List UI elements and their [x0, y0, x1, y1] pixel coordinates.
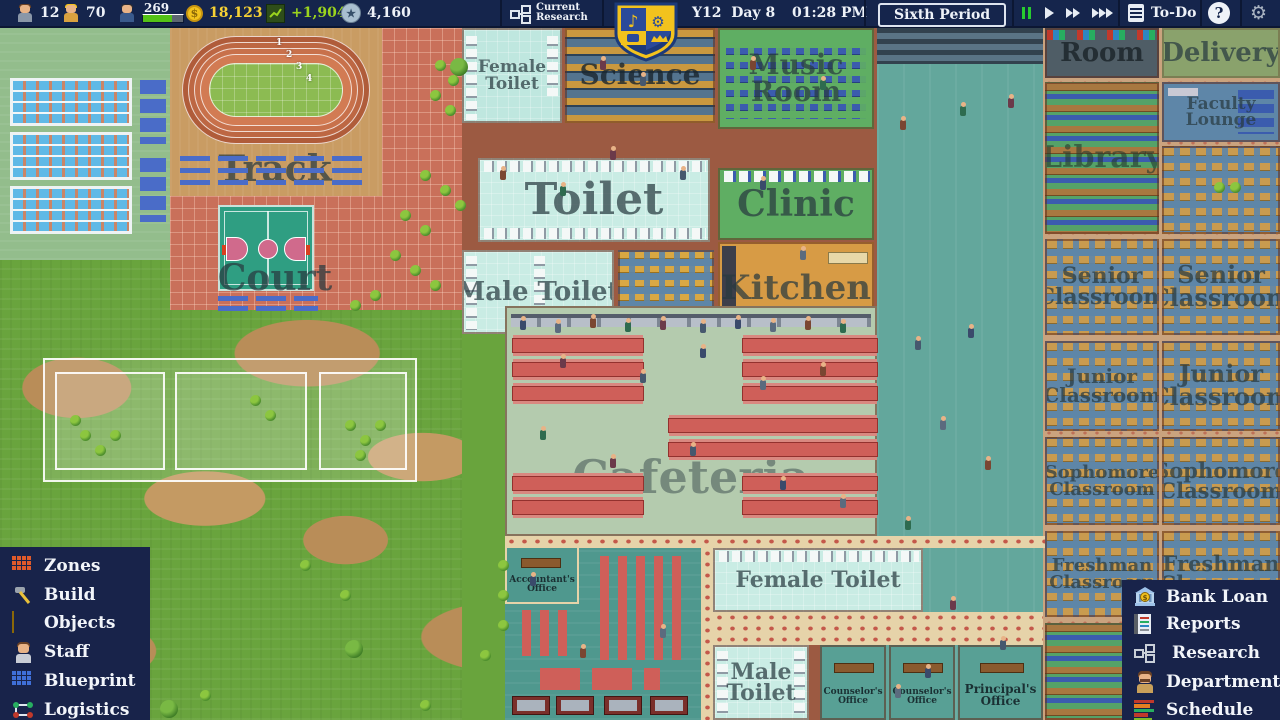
department-icon: [1134, 671, 1156, 693]
student-capacity-bar: [142, 14, 184, 23]
basketball-court[interactable]: [218, 205, 314, 291]
bush: [345, 420, 356, 431]
room-female-toilet-top[interactable]: Female Toilet: [462, 28, 562, 123]
build-menu: Zones Build Objects Staff Blueprint: [0, 547, 150, 720]
divider: [1240, 0, 1242, 26]
person: [580, 648, 586, 658]
coin-icon: $: [186, 5, 203, 22]
report-icon: [1134, 614, 1151, 634]
bush: [420, 225, 431, 236]
person: [610, 150, 616, 160]
pool-benches: [152, 158, 166, 222]
room-male-toilet-bottom[interactable]: Male Toilet: [713, 645, 809, 720]
network-icon: [12, 699, 34, 720]
tree: [160, 700, 178, 718]
bush: [350, 300, 361, 311]
admin-count[interactable]: 12: [16, 0, 59, 26]
cafeteria-table: [742, 362, 878, 377]
tree: [345, 640, 363, 658]
menu-item-research[interactable]: Research: [1122, 640, 1280, 666]
staff-icon: [12, 641, 34, 663]
svg-text:⚙: ⚙: [651, 13, 664, 31]
person: [680, 170, 686, 180]
person: [905, 520, 911, 530]
vending-machine[interactable]: [650, 696, 688, 715]
person: [590, 318, 596, 328]
menu-item-staff[interactable]: Staff: [0, 641, 150, 663]
worker-icon: [62, 4, 80, 22]
divider: [1118, 0, 1120, 26]
bush: [498, 560, 509, 571]
room-female-toilet-bottom[interactable]: Female Toilet: [713, 548, 923, 612]
profit-display[interactable]: +1,904: [266, 0, 347, 26]
person: [560, 186, 566, 196]
swimming-pool[interactable]: [10, 78, 132, 126]
bush: [410, 265, 421, 276]
hallway[interactable]: [505, 536, 1045, 548]
person: [530, 576, 536, 586]
bush: [455, 200, 466, 211]
bush: [360, 435, 371, 446]
room-senior-classroom-l[interactable]: Senior Classroom: [1045, 239, 1159, 335]
bush: [480, 650, 491, 661]
vending-machine[interactable]: [604, 696, 642, 715]
bank-icon: $: [1134, 586, 1156, 608]
person: [770, 322, 776, 332]
room-counselors-office-1[interactable]: Counselor's Office: [820, 645, 886, 720]
money-display[interactable]: $ 18,123: [186, 0, 263, 26]
menu-item-schedule[interactable]: Schedule: [1122, 698, 1280, 720]
world-map[interactable]: 1 2 3 4 Track Court: [0, 28, 1280, 720]
person: [840, 323, 846, 333]
date-display: Y12 Day 8: [692, 0, 775, 26]
divider: [1012, 0, 1014, 26]
person: [625, 322, 631, 332]
swimming-pool[interactable]: [10, 186, 132, 234]
tree: [450, 58, 468, 76]
person: [735, 319, 741, 329]
serving-counter: [511, 314, 871, 327]
pause-button[interactable]: [1022, 7, 1031, 19]
room-sophomore-classroom-r[interactable]: Sophomore Classroom: [1162, 437, 1280, 525]
bush: [445, 105, 456, 116]
bush: [375, 420, 386, 431]
room-junior-classroom-l[interactable]: Junior Classroom: [1045, 341, 1159, 431]
person: [700, 348, 706, 358]
menu-item-logistics[interactable]: Logistics: [0, 699, 150, 720]
room-music[interactable]: Music Room: [718, 28, 874, 129]
bush: [300, 560, 311, 571]
bush: [498, 620, 509, 631]
person: [895, 688, 901, 698]
schedule-icon: [1134, 698, 1156, 720]
bush: [80, 430, 91, 441]
bush: [420, 700, 431, 711]
lane-number: 4: [306, 74, 312, 84]
room-art[interactable]: Room: [1045, 28, 1159, 78]
room-classroom-ne[interactable]: [1162, 146, 1280, 234]
bleachers: [180, 168, 370, 173]
box-icon: [12, 611, 14, 633]
bush: [265, 410, 276, 421]
time-display: 01:28 PM: [792, 0, 867, 26]
annex-tables: [540, 668, 660, 690]
room-junior-classroom-r[interactable]: Junior Classroom: [1162, 341, 1280, 431]
room-sophomore-classroom-l[interactable]: Sophomore Classroom: [1045, 437, 1159, 525]
bush: [498, 590, 509, 601]
person: [660, 628, 666, 638]
hammer-icon: [12, 584, 34, 606]
person: [760, 380, 766, 390]
hoop: [222, 245, 226, 255]
bush: [250, 395, 261, 406]
person: [950, 600, 956, 610]
lane-number: 3: [296, 62, 302, 72]
room-counselors-office-2[interactable]: Counselor's Office: [889, 645, 955, 720]
person: [900, 120, 906, 130]
room-accountants-office[interactable]: Accountant's Office: [505, 542, 579, 604]
person: [555, 323, 561, 333]
room-senior-classroom-r[interactable]: Senior Classroom: [1162, 239, 1280, 335]
vending-machine[interactable]: [556, 696, 594, 715]
lane-number: 1: [276, 38, 282, 48]
running-track[interactable]: 1 2 3 4: [182, 36, 370, 144]
bush: [200, 690, 211, 701]
student-icon: [118, 4, 136, 22]
room-clinic[interactable]: Clinic: [718, 168, 874, 240]
menu-item-blueprint[interactable]: Blueprint: [0, 669, 150, 693]
person: [820, 80, 826, 90]
help-button[interactable]: ?: [1208, 0, 1230, 26]
settings-button[interactable]: ⚙: [1250, 0, 1267, 26]
auditorium-strip[interactable]: [877, 28, 1043, 64]
admin-icon: [16, 4, 34, 22]
profit-chart-icon: [266, 4, 285, 23]
menu-item-department[interactable]: Department: [1122, 671, 1280, 693]
cafeteria-table: [742, 338, 878, 353]
divider: [864, 0, 866, 26]
current-research-button[interactable]: CurrentResearch: [510, 0, 588, 26]
cafeteria-table: [742, 476, 878, 491]
annex-tables: [600, 556, 686, 660]
gear-icon: ⚙: [1250, 2, 1267, 24]
blueprint-garden[interactable]: [43, 358, 417, 482]
pool-benches: [152, 80, 166, 144]
swimming-pool[interactable]: [10, 132, 132, 180]
divider: [602, 0, 604, 26]
menu-item-zones[interactable]: Zones: [0, 554, 150, 578]
bush: [435, 60, 446, 71]
divider: [1200, 0, 1202, 26]
research-icon: [510, 5, 530, 21]
bush: [390, 250, 401, 261]
cafeteria-table: [742, 500, 878, 515]
bush: [420, 170, 431, 181]
cafeteria-table: [512, 338, 644, 353]
menu-item-reports[interactable]: Reports: [1122, 613, 1280, 635]
room-principals-office[interactable]: Principal's Office: [958, 645, 1043, 720]
person: [820, 366, 826, 376]
person: [780, 480, 786, 490]
todo-list-icon: [1128, 4, 1144, 22]
cafeteria-table: [512, 476, 644, 491]
bleachers: [180, 156, 370, 161]
todo-button[interactable]: To-Do: [1128, 0, 1196, 26]
bush: [370, 290, 381, 301]
person: [500, 170, 506, 180]
zones-grid-icon: [12, 554, 34, 578]
speed-controls: [1022, 0, 1113, 26]
person: [750, 60, 756, 70]
court-benches: [218, 296, 318, 301]
annex-tables: [522, 610, 572, 656]
person: [690, 446, 696, 456]
fastest-button[interactable]: [1092, 8, 1113, 18]
person: [560, 358, 566, 368]
svg-text:♪: ♪: [628, 12, 639, 32]
person: [700, 323, 706, 333]
cafeteria-table: [668, 442, 878, 457]
svg-text:$: $: [1143, 594, 1148, 602]
person: [800, 250, 806, 260]
room-library[interactable]: Library: [1045, 82, 1159, 234]
person: [940, 420, 946, 430]
person: [660, 320, 666, 330]
bush: [340, 590, 351, 601]
menu-item-objects[interactable]: Objects: [0, 612, 150, 634]
vending-machine[interactable]: [512, 696, 550, 715]
bush: [70, 415, 81, 426]
menu-item-bank-loan[interactable]: $ Bank Loan: [1122, 586, 1280, 608]
bush: [448, 75, 459, 86]
person: [760, 180, 766, 190]
room-faculty-lounge[interactable]: Faculty Lounge: [1162, 82, 1280, 142]
school-crest-logo: ♪ ⚙: [606, 0, 686, 62]
person: [915, 340, 921, 350]
person: [640, 373, 646, 383]
blueprint-grid-icon: [12, 669, 34, 693]
person: [1008, 98, 1014, 108]
zone-delivery[interactable]: Delivery: [1162, 28, 1280, 78]
bush: [440, 185, 451, 196]
hallway[interactable]: [701, 548, 713, 720]
court-benches: [218, 306, 318, 311]
game-screen: 1 2 3 4 Track Court: [0, 0, 1280, 720]
org-chart-icon: [1134, 644, 1156, 666]
person: [840, 498, 846, 508]
person: [1000, 640, 1006, 650]
management-menu: $ Bank Loan Reports Research Department: [1122, 580, 1280, 720]
play-button[interactable]: [1045, 7, 1054, 19]
room-toilet-main[interactable]: Toilet: [478, 158, 710, 242]
cafeteria-table: [512, 362, 644, 377]
bush: [430, 280, 441, 291]
person: [805, 320, 811, 330]
person: [540, 430, 546, 440]
bush: [400, 210, 411, 221]
worker-count[interactable]: 70: [62, 0, 105, 26]
bush: [95, 445, 106, 456]
bush: [430, 90, 441, 101]
bleachers: [180, 180, 370, 185]
person: [610, 458, 616, 468]
star-icon: ★: [341, 3, 361, 23]
period-indicator: Sixth Period: [878, 3, 1006, 27]
person: [520, 320, 526, 330]
person: [925, 668, 931, 678]
cafeteria-table: [668, 418, 878, 433]
student-count[interactable]: 269: [118, 0, 184, 26]
fast-forward-button[interactable]: [1066, 8, 1080, 18]
lane-number: 2: [286, 50, 292, 60]
hoop: [306, 245, 310, 255]
cafeteria-table: [512, 386, 644, 401]
divider: [500, 0, 502, 26]
person: [985, 460, 991, 470]
bush: [355, 450, 366, 461]
hallway[interactable]: [713, 612, 1043, 645]
person: [960, 106, 966, 116]
menu-item-build[interactable]: Build: [0, 584, 150, 606]
cafeteria-table: [512, 500, 644, 515]
points-display[interactable]: ★ 4,160: [341, 0, 411, 26]
person: [968, 328, 974, 338]
bush: [110, 430, 121, 441]
person: [640, 76, 646, 86]
